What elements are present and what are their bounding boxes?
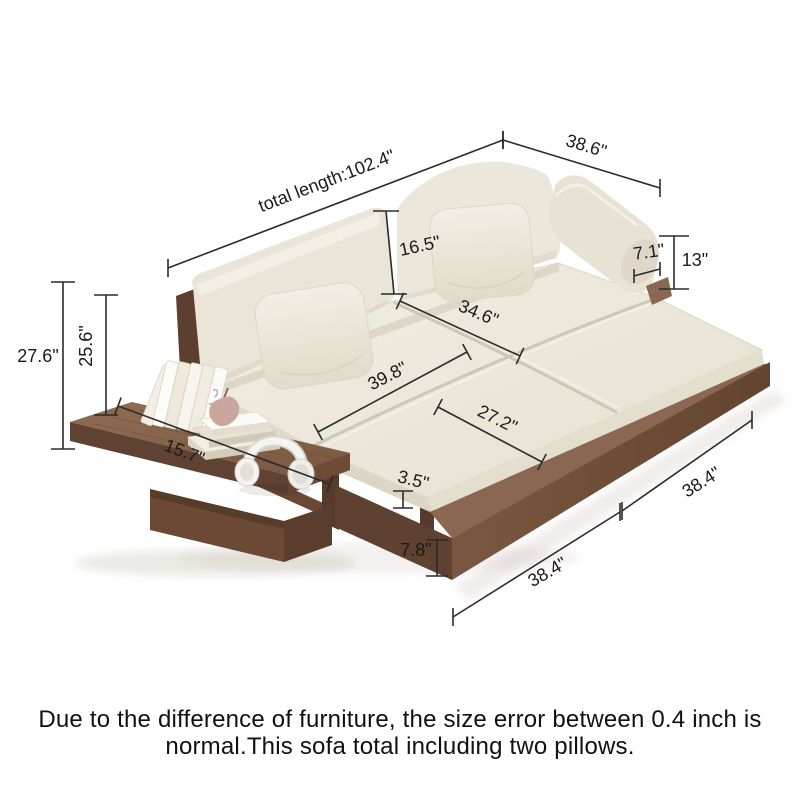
dimension-label-base-height-7-8: 7.8" <box>400 540 431 560</box>
dimension-label-back-height-25-6: 25.6" <box>76 325 96 366</box>
throw-pillow-right <box>428 202 536 302</box>
throw-pillow-left <box>252 280 376 392</box>
size-disclaimer-line1: Due to the difference of furniture, the … <box>0 706 800 733</box>
dimension-label-armrest-height-13: 13" <box>682 250 708 270</box>
dimension-label-total-height-27-6: 27.6" <box>17 346 58 366</box>
size-disclaimer: Due to the difference of furniture, the … <box>0 706 800 760</box>
dimension-label-side-width-38-4: 38.4" <box>678 462 724 501</box>
dimension-label-armrest-width-7-1: 7.1" <box>632 240 666 264</box>
sofa-illustration <box>70 162 788 600</box>
dimension-label-depth-38-6: 38.6" <box>564 130 609 161</box>
product-dimension-diagram: total length:102.4"38.6"16.5"7.1"13"34.6… <box>0 0 800 800</box>
dimension-label-total-length: total length:102.4" <box>256 146 398 216</box>
dimension-back-height-25-6: 25.6" <box>76 295 118 415</box>
size-disclaimer-line2: normal.This sofa total including two pil… <box>0 733 800 760</box>
dimension-total-height-27-6: 27.6" <box>17 282 75 449</box>
sofa-dimension-canvas: total length:102.4"38.6"16.5"7.1"13"34.6… <box>0 0 800 800</box>
